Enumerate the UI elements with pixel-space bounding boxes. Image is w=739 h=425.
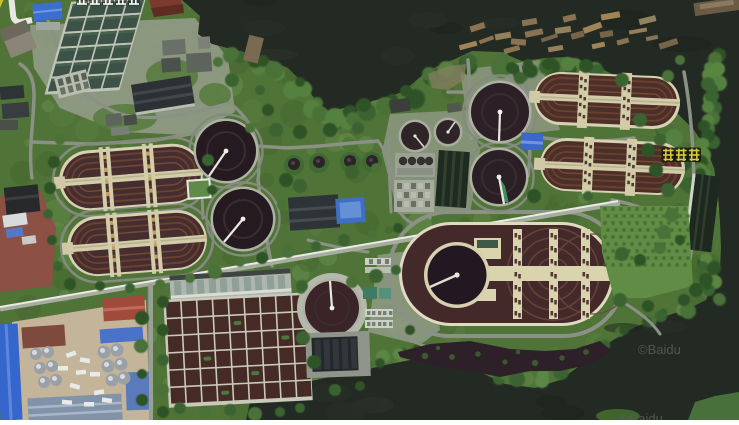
svg-text:©Baidu: ©Baidu	[638, 342, 681, 357]
svg-text:©Baidu: ©Baidu	[620, 411, 663, 420]
